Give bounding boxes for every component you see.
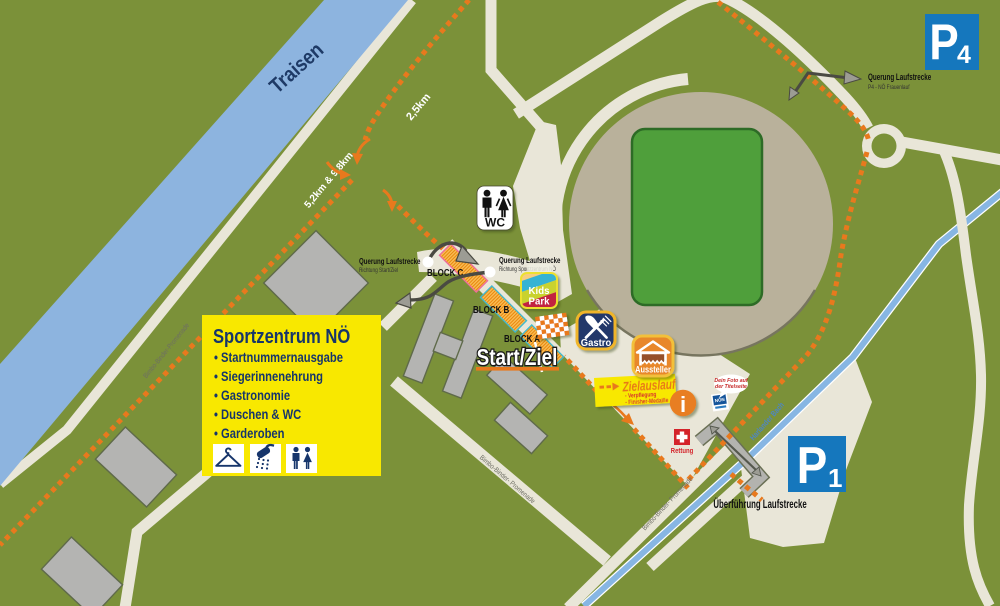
svg-text:Richtung Start/Ziel: Richtung Start/Ziel: [359, 267, 398, 274]
svg-text:Gastro: Gastro: [581, 338, 611, 350]
svg-text:Aussteller: Aussteller: [635, 365, 671, 375]
svg-text:• Siegerinnenehrung: • Siegerinnenehrung: [214, 369, 323, 384]
svg-text:• Gastronomie: • Gastronomie: [214, 388, 290, 403]
svg-text:Sportzentrum NÖ: Sportzentrum NÖ: [213, 325, 350, 348]
svg-text:Start/Ziel: Start/Ziel: [477, 345, 558, 370]
svg-text:der Titelseite: der Titelseite: [715, 384, 747, 390]
svg-text:P: P: [797, 437, 828, 494]
svg-text:• Garderoben: • Garderoben: [214, 426, 284, 441]
svg-text:Querung Laufstrecke: Querung Laufstrecke: [499, 255, 560, 265]
svg-text:4: 4: [957, 41, 971, 69]
svg-text:i: i: [680, 392, 686, 417]
svg-text:Querung Laufstrecke: Querung Laufstrecke: [868, 72, 932, 82]
svg-text:1: 1: [828, 463, 842, 493]
svg-text:Querung Laufstrecke: Querung Laufstrecke: [359, 256, 420, 266]
svg-text:• Startnummernausgabe: • Startnummernausgabe: [214, 350, 343, 365]
svg-text:P4 - NÖ Frauenlauf: P4 - NÖ Frauenlauf: [868, 83, 910, 91]
svg-text:Park: Park: [529, 296, 550, 307]
svg-text:WC: WC: [485, 216, 505, 230]
svg-text:Überführung Laufstrecke: Überführung Laufstrecke: [713, 499, 807, 512]
svg-text:BLOCK B: BLOCK B: [473, 304, 510, 315]
svg-text:P: P: [929, 13, 958, 69]
svg-text:Rettung: Rettung: [671, 448, 693, 456]
svg-text:• Duschen & WC: • Duschen & WC: [214, 407, 301, 422]
